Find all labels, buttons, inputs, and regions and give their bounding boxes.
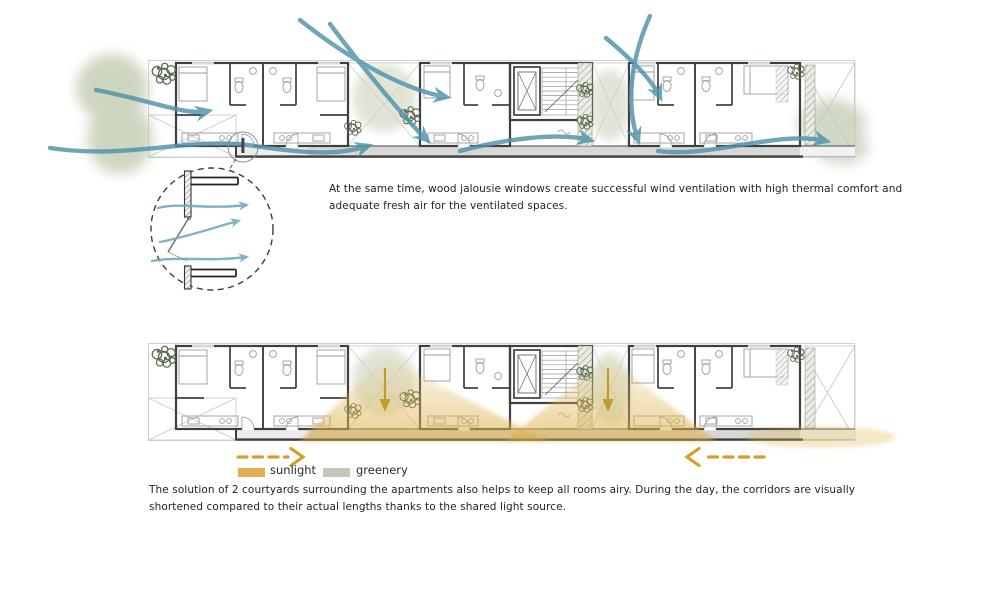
greenery-legend-label: greenery — [356, 463, 408, 477]
sunlight-legend-swatch — [238, 468, 265, 477]
wind-caption: At the same time, wood jalousie windows … — [329, 181, 909, 215]
greenery-blob-left — [76, 54, 153, 174]
jalousie-window-detail — [151, 168, 273, 290]
diagram-sheet: At the same time, wood jalousie windows … — [0, 0, 1000, 596]
sunlight-legend-label: sunlight — [270, 463, 316, 477]
daylight-diagram — [149, 344, 896, 466]
wind-ventilation-diagram — [50, 16, 868, 290]
daylight-caption: The solution of 2 courtyards surrounding… — [149, 482, 869, 516]
greenery-legend-swatch — [323, 468, 350, 477]
dashed-sunlight-arrow-left — [687, 449, 764, 466]
